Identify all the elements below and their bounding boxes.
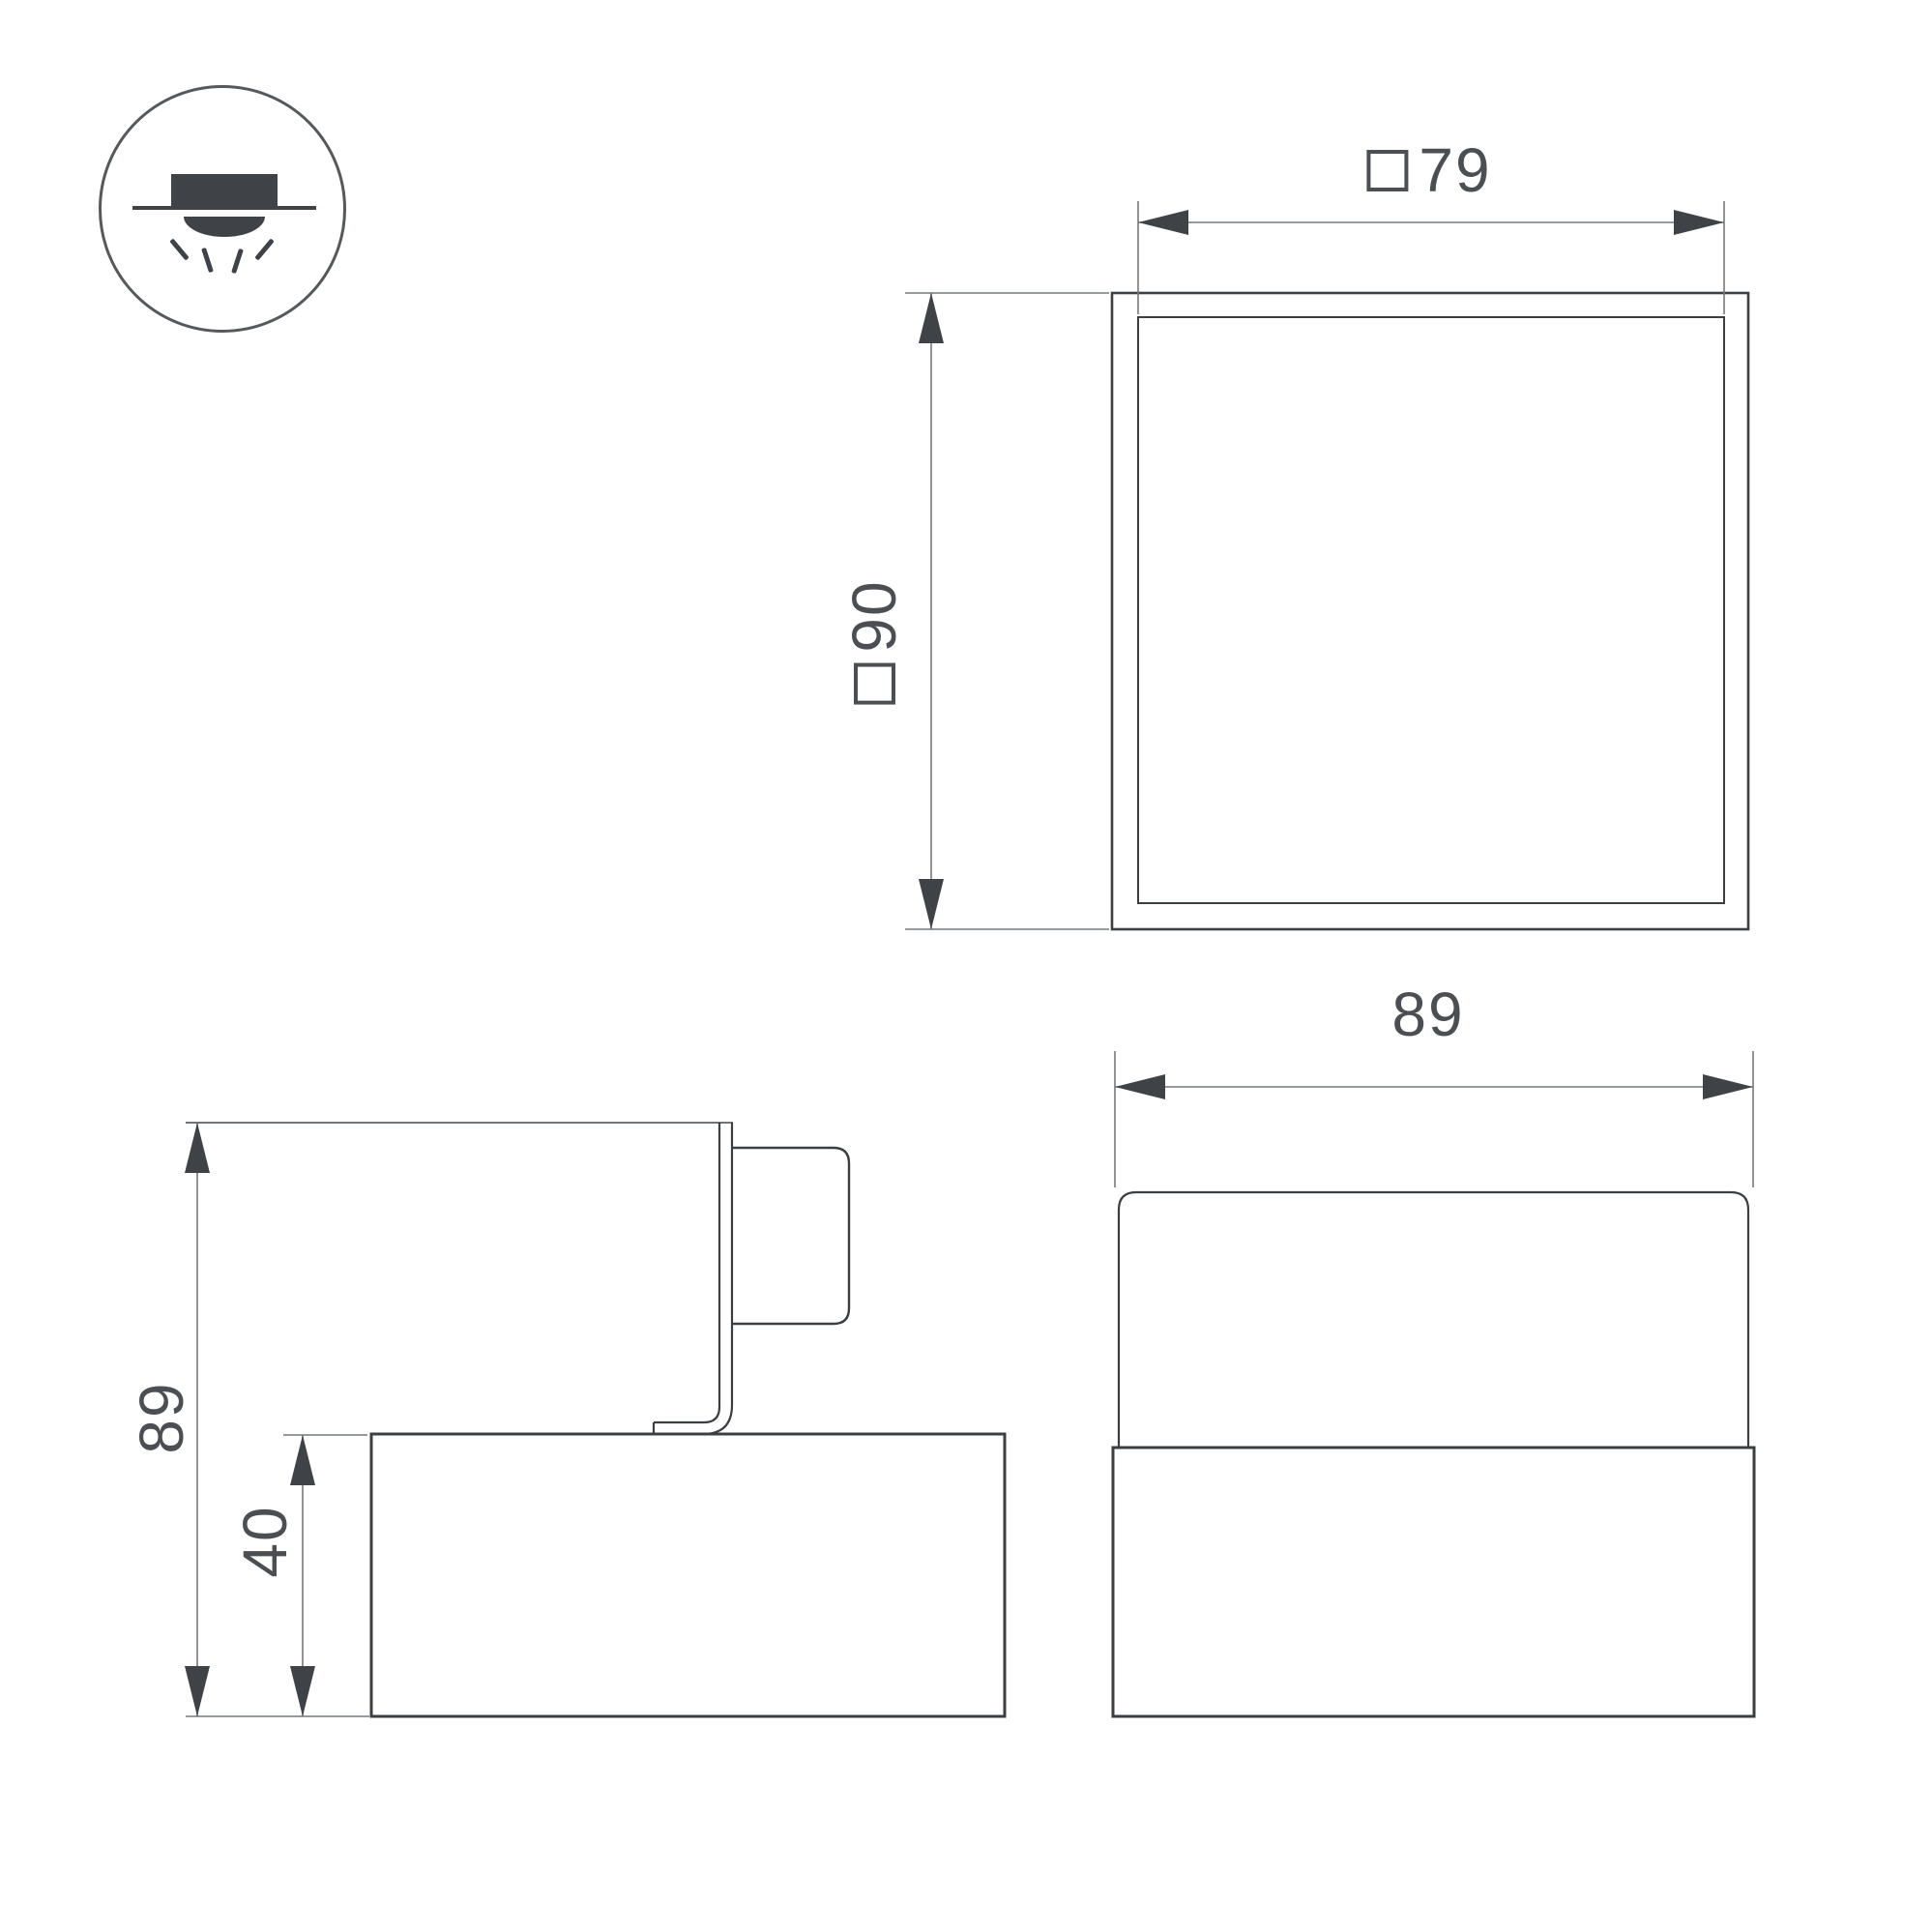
front-view-base: [1113, 1448, 1754, 1716]
side-view-base: [371, 1434, 1005, 1716]
dim-90: [905, 293, 1109, 929]
side-view-height-label: 89: [131, 1381, 192, 1453]
dim-79: [1138, 201, 1724, 314]
dimension-value: 40: [234, 1505, 296, 1577]
arrowhead: [185, 1666, 210, 1716]
side-view: [186, 1123, 1005, 1716]
dimension-value: 89: [1391, 983, 1464, 1045]
drawing-canvas: [0, 0, 1932, 1932]
top-view-inner-square: [1138, 317, 1724, 903]
connector-box: [732, 1148, 849, 1324]
front-view: [1113, 1192, 1754, 1716]
arrowhead: [290, 1435, 315, 1485]
dim-89-front: [1115, 1051, 1753, 1187]
top-view-outer-square: [1112, 293, 1748, 929]
arrowhead: [1138, 210, 1188, 235]
dimension-value: 90: [843, 579, 905, 652]
square-dimension-symbol: [1366, 150, 1408, 191]
arrowhead: [919, 293, 944, 343]
technical-drawing-page: 79 90 89 89 40: [0, 0, 1932, 1932]
top-view-width-label: 79: [1366, 139, 1491, 201]
front-view-shade: [1119, 1192, 1748, 1448]
arrowhead: [185, 1123, 210, 1173]
dimension-value: 79: [1419, 139, 1491, 201]
arrowhead: [1674, 210, 1724, 235]
bracket-inner-edge: [654, 1123, 719, 1422]
top-view: [1112, 293, 1748, 929]
square-dimension-symbol: [854, 663, 895, 705]
arrowhead: [290, 1666, 315, 1716]
arrowhead: [1115, 1074, 1165, 1099]
side-view-base-height-label: 40: [234, 1505, 296, 1577]
dimension-value: 89: [131, 1381, 192, 1453]
front-view-width-label: 89: [1391, 983, 1464, 1045]
top-view-height-label: 90: [843, 579, 905, 704]
arrowhead: [919, 879, 944, 929]
arrowhead: [1703, 1074, 1753, 1099]
dim-89-side: [186, 1123, 369, 1716]
